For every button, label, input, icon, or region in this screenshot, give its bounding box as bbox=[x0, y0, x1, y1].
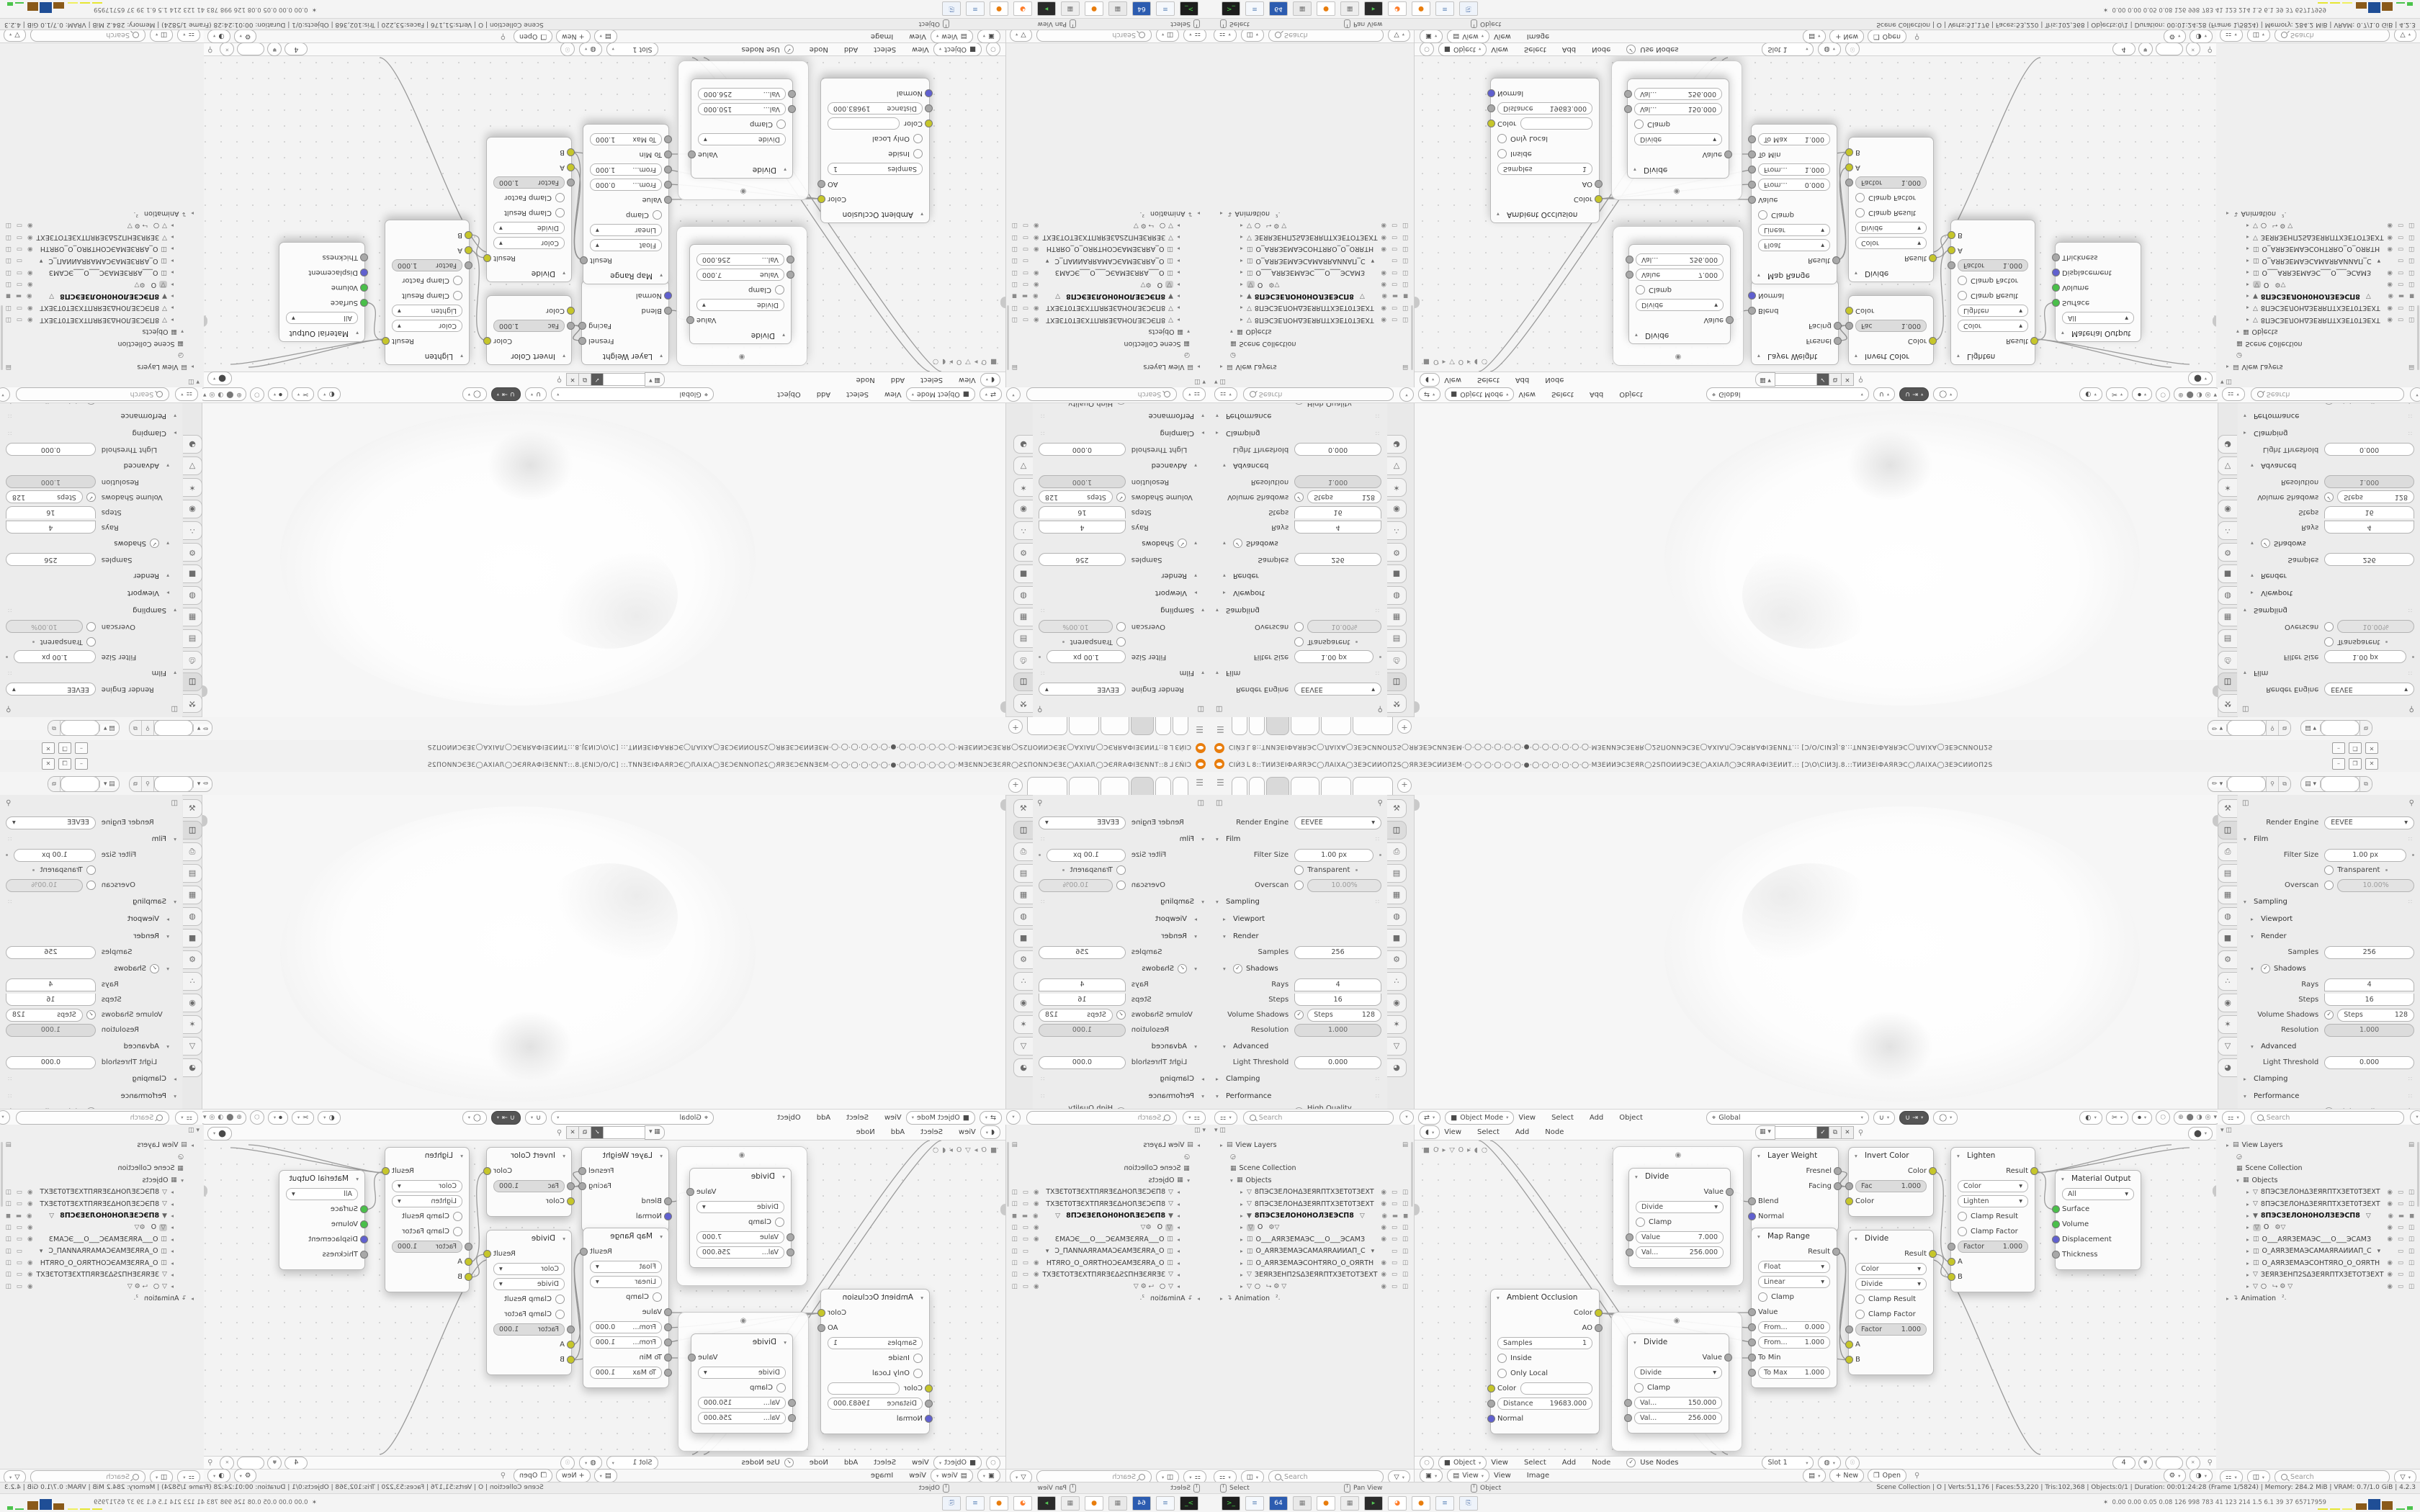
expand-arrow-icon[interactable]: ▸ bbox=[167, 305, 174, 311]
socket-purple[interactable] bbox=[1748, 1212, 1756, 1220]
workspace-tab[interactable] bbox=[1291, 777, 1319, 795]
notepad-taskbar-icon[interactable]: ≡ bbox=[1156, 1496, 1175, 1511]
outliner-item[interactable]: ▸▽ЗЕЯRЗЕНП2SΔЗЕЯRПТХЗЕТОТЗЕХТ◉▭◫ bbox=[1210, 231, 1411, 243]
properties-section-advanced[interactable]: ▾Advanced bbox=[6, 1038, 176, 1055]
editor-type-button[interactable]: ⚏ ▾ bbox=[2222, 388, 2245, 402]
editor-type-button[interactable]: ⚏ ▾ bbox=[1214, 1111, 1237, 1125]
value-from[interactable]: From...1.000 bbox=[590, 163, 662, 176]
terminal-taskbar-icon[interactable]: >_ bbox=[1222, 1, 1240, 16]
properties-search-input[interactable]: Search bbox=[1243, 388, 1394, 402]
expand-arrow-icon[interactable]: ▾ bbox=[1223, 966, 1229, 972]
outliner-item[interactable]: ▸▽○⮡ ⚙ ▽◉▭◫ bbox=[1009, 1281, 1210, 1292]
properties-section-viewport[interactable]: ▸Viewport bbox=[6, 910, 176, 927]
particles-properties-tab-icon[interactable]: ∴ bbox=[1387, 972, 1407, 991]
editor-type-button[interactable]: ⚏ ▾ bbox=[2222, 1111, 2245, 1125]
visibility-icon[interactable]: ◉ bbox=[27, 246, 32, 253]
value-light-threshold[interactable]: 0.000 bbox=[1039, 1056, 1126, 1069]
image-id-selector[interactable]: ▤ ▾ ⧉ bbox=[48, 776, 120, 792]
node-ambient-occlusion[interactable]: ▾Ambient OcclusionColorAOSamples1InsideO… bbox=[820, 78, 930, 223]
visibility-icon[interactable]: ◉ bbox=[2388, 222, 2393, 229]
blender-taskbar-icon[interactable]: ● bbox=[1317, 1, 1335, 16]
blender-2-taskbar-icon[interactable]: ● bbox=[990, 1496, 1008, 1511]
notepad-2-taskbar-icon[interactable]: ≡ bbox=[966, 1496, 985, 1511]
expand-arrow-icon[interactable]: ▸ bbox=[1240, 282, 1247, 288]
pin-icon[interactable]: ⚲ bbox=[207, 45, 212, 53]
visibility-icon[interactable]: ◉ bbox=[27, 1212, 32, 1220]
socket-purple[interactable] bbox=[360, 1236, 368, 1243]
expand-arrow-icon[interactable]: ▾ bbox=[1191, 463, 1197, 469]
socket-gray[interactable] bbox=[1845, 1326, 1853, 1333]
expand-arrow-icon[interactable]: ▸ bbox=[2244, 1076, 2250, 1082]
socket-gray[interactable] bbox=[1748, 166, 1756, 174]
toolbar-toggle-handle[interactable] bbox=[1415, 701, 1420, 713]
scene-properties-tab-icon[interactable]: ▦ bbox=[183, 608, 202, 626]
visibility-icon[interactable]: ◉ bbox=[1034, 1236, 1039, 1243]
image-id-selector[interactable]: ▤ ▾ ⧉ bbox=[2300, 720, 2372, 736]
node-header[interactable]: ▾Divide bbox=[691, 1334, 792, 1350]
properties-section-render[interactable]: ▾Render bbox=[1216, 927, 1381, 945]
menu-add[interactable]: Add bbox=[891, 1128, 905, 1136]
material-properties-tab-icon[interactable]: ◕ bbox=[2218, 435, 2237, 454]
menu-add[interactable]: Add bbox=[1562, 45, 1576, 53]
expand-arrow-icon[interactable]: ▸ bbox=[1173, 1212, 1180, 1219]
expand-arrow-icon[interactable]: ▾ bbox=[163, 966, 169, 972]
node-header[interactable]: ▾Invert Color bbox=[487, 348, 571, 364]
node-header[interactable]: ▾Ambient Occlusion bbox=[1491, 1290, 1599, 1305]
toggle-checkbox[interactable] bbox=[2324, 1010, 2334, 1020]
value-resolution[interactable]: 1.000 bbox=[1039, 476, 1126, 489]
outliner-visibility-icons[interactable]: ◉▭◫ bbox=[1009, 269, 1039, 276]
properties-section-clamping[interactable]: ▸Clamping∷ bbox=[1039, 1070, 1204, 1087]
socket-yellow[interactable] bbox=[1845, 1356, 1853, 1364]
fake-user-toggle[interactable]: ✓ bbox=[1817, 373, 1829, 386]
visibility-icon[interactable]: ▭ bbox=[1023, 316, 1028, 323]
close-button[interactable]: ✕ bbox=[42, 758, 55, 770]
outliner-scrollbar[interactable] bbox=[1007, 305, 1009, 370]
menu-object[interactable]: Object bbox=[1619, 1114, 1643, 1122]
socket-gray[interactable] bbox=[1624, 1399, 1632, 1407]
collapse-arrow-icon[interactable]: ▾ bbox=[1633, 167, 1640, 174]
pin-icon[interactable]: ⚲ bbox=[2208, 45, 2213, 53]
tool-properties-tab-icon[interactable]: ⚒ bbox=[1387, 799, 1407, 818]
outliner-item[interactable]: ◶ bbox=[1210, 349, 1411, 361]
outliner-item[interactable]: ▦Scene Collection bbox=[2216, 1163, 2417, 1174]
scene-properties-tab-icon[interactable]: ▦ bbox=[183, 886, 202, 904]
value-fac[interactable]: Fac1.000 bbox=[493, 320, 565, 332]
node-divide[interactable]: ▾DivideResultColor▾Divide▾Clamp ResultCl… bbox=[486, 137, 572, 282]
menu-select[interactable]: Select bbox=[1551, 1114, 1574, 1122]
expand-arrow-icon[interactable]: ▸ bbox=[1193, 1295, 1200, 1302]
scene-properties-tab-icon[interactable]: ▦ bbox=[1387, 608, 1407, 626]
shading-options-chevron[interactable]: ▾ bbox=[2213, 391, 2217, 398]
socket-gray[interactable] bbox=[1748, 1197, 1756, 1205]
socket-yellow[interactable] bbox=[1929, 254, 1937, 262]
visibility-icon[interactable]: ▭ bbox=[2398, 1189, 2403, 1196]
snap-dropdown[interactable]: ∪ ▾ bbox=[525, 1111, 547, 1125]
visibility-icon[interactable]: ▭ bbox=[1391, 316, 1397, 323]
transform-orientation-dropdown[interactable]: ⌖ Global▾ bbox=[1706, 388, 1869, 402]
visibility-icon[interactable]: ◫ bbox=[6, 222, 12, 229]
data-properties-tab-icon[interactable]: ▽ bbox=[2218, 1037, 2237, 1056]
outliner-item[interactable]: ▾▦Objects bbox=[1009, 1174, 1210, 1186]
material-name-field[interactable] bbox=[603, 1126, 645, 1139]
node-divide[interactable]: ▾DivideResultColor▾Divide▾Clamp ResultCl… bbox=[1848, 137, 1934, 282]
visibility-icon[interactable]: ◉ bbox=[1381, 246, 1386, 253]
socket-gray[interactable] bbox=[664, 1197, 672, 1205]
animate-dot-icon[interactable] bbox=[32, 641, 35, 643]
section-checkbox[interactable] bbox=[150, 964, 159, 973]
gizmo-dropdown[interactable]: ◐▾ bbox=[318, 1111, 341, 1125]
display-channels-dropdown[interactable]: ◑ ▾ bbox=[2190, 30, 2213, 43]
outliner-visibility-icons[interactable]: ◉▭◫ bbox=[1009, 1189, 1039, 1196]
node-divide[interactable]: ▾DivideValueDivide▾ClampValue7.000Val...… bbox=[1628, 244, 1731, 344]
viewport-3d[interactable] bbox=[202, 795, 1006, 1109]
outliner-visibility-icons[interactable]: ◉▭◫ bbox=[2388, 1271, 2417, 1278]
socket-gray[interactable] bbox=[567, 1326, 575, 1333]
data-properties-tab-icon[interactable]: ▽ bbox=[1387, 456, 1407, 475]
dropdown-all[interactable]: All▾ bbox=[286, 1188, 358, 1200]
physics-properties-tab-icon[interactable]: ◉ bbox=[183, 500, 202, 518]
value-from[interactable]: From...1.000 bbox=[590, 1336, 662, 1349]
visibility-icon[interactable]: ◫ bbox=[1402, 1248, 1408, 1255]
toggle-checkbox[interactable] bbox=[1116, 622, 1126, 631]
proportional-edit-dropdown[interactable]: ◯ ▾ bbox=[462, 1111, 487, 1125]
material-icon[interactable]: ▦ ▾ bbox=[1755, 372, 1775, 387]
socket-green[interactable] bbox=[2052, 299, 2060, 307]
value-rays[interactable]: 4 bbox=[2324, 521, 2414, 534]
visibility-icon[interactable]: ◉ bbox=[1381, 305, 1386, 312]
socket-yellow[interactable] bbox=[1487, 120, 1495, 127]
scene-properties-tab-icon[interactable]: ▦ bbox=[2218, 608, 2237, 626]
expand-arrow-icon[interactable]: ▸ bbox=[167, 282, 174, 288]
visibility-icon[interactable]: ◫ bbox=[6, 316, 12, 323]
value-val[interactable]: Val...256.000 bbox=[698, 1412, 786, 1424]
visibility-icon[interactable]: ▭ bbox=[17, 1200, 22, 1207]
value-val[interactable]: Val...256.000 bbox=[1634, 1412, 1722, 1424]
render-properties-tab-icon[interactable]: ◫ bbox=[1387, 672, 1407, 691]
viewport-3d[interactable] bbox=[1414, 795, 2218, 1109]
shader-type-icon[interactable]: ◯ bbox=[986, 42, 1000, 57]
outliner-visibility-icons[interactable]: ◉▭◫ bbox=[1009, 234, 1039, 241]
socket-yellow[interactable] bbox=[1845, 148, 1853, 156]
visibility-icon[interactable]: ◫ bbox=[1402, 257, 1408, 264]
properties-section-film[interactable]: ▾Film∷ bbox=[6, 830, 176, 847]
dropdown-color[interactable]: Color▾ bbox=[1958, 1180, 2028, 1192]
visibility-icon[interactable]: ◉ bbox=[2388, 246, 2393, 253]
visibility-icon[interactable]: ▤ bbox=[2408, 1141, 2414, 1148]
visibility-icon[interactable]: ◫ bbox=[1012, 1224, 1018, 1231]
node-header[interactable]: ▾Map Range bbox=[583, 1228, 668, 1244]
modifiers-properties-tab-icon[interactable]: ⚙ bbox=[1387, 543, 1407, 562]
outliner-item[interactable]: ▦Scene Collection bbox=[3, 338, 204, 349]
expand-arrow-icon[interactable]: ▾ bbox=[163, 463, 169, 469]
expand-arrow-icon[interactable]: ▸ bbox=[1220, 364, 1227, 370]
solid-shading-icon[interactable]: ⬤ bbox=[226, 1114, 233, 1121]
expand-arrow-icon[interactable]: ▾ bbox=[170, 413, 176, 420]
open-image-button[interactable]: ❒ Open bbox=[1868, 30, 1906, 43]
output-properties-tab-icon[interactable]: ⎙ bbox=[1387, 842, 1407, 861]
visibility-icon[interactable]: ◉ bbox=[27, 1271, 32, 1278]
expand-arrow-icon[interactable]: ▸ bbox=[1173, 1201, 1180, 1207]
visibility-icon[interactable]: ◉ bbox=[27, 316, 32, 323]
pin-icon[interactable]: ⚲ bbox=[142, 777, 154, 791]
use-nodes-checkbox[interactable] bbox=[784, 45, 794, 54]
visibility-icon[interactable]: ◉ bbox=[1034, 1189, 1039, 1196]
collapse-arrow-icon[interactable]: ▾ bbox=[559, 1153, 565, 1159]
expand-arrow-icon[interactable]: ▸ bbox=[1240, 1212, 1247, 1219]
outliner-visibility-icons[interactable]: ◉▭◫ bbox=[3, 269, 32, 276]
mode-dropdown[interactable]: ■ Object Mode ▾ bbox=[906, 1111, 975, 1125]
display-channels-dropdown[interactable]: ◑ ▾ bbox=[207, 1469, 230, 1482]
script-taskbar-icon[interactable]: ⎘ bbox=[942, 1496, 961, 1511]
editor-type-dropdown[interactable]: ▣ ▾ bbox=[977, 30, 1000, 43]
menu-object[interactable]: Object bbox=[777, 391, 801, 399]
expand-arrow-icon[interactable]: ▸ bbox=[1240, 1224, 1247, 1230]
visibility-icon[interactable]: ◉ bbox=[27, 1259, 32, 1266]
animate-dot-icon[interactable] bbox=[1355, 869, 1358, 871]
socket-gray[interactable] bbox=[1624, 1414, 1632, 1422]
outliner-visibility-icons[interactable]: ▭◫ bbox=[3, 257, 22, 264]
material-shading-icon[interactable]: ◑ bbox=[2197, 391, 2202, 398]
output-properties-tab-icon[interactable]: ⎙ bbox=[1013, 842, 1033, 861]
outliner-visibility-icons[interactable]: ◉▭◫ bbox=[1381, 222, 1411, 229]
node-layer-weight[interactable]: ▾Layer WeightFresnelFacingBlendNormal bbox=[581, 1147, 669, 1232]
material-properties-tab-icon[interactable]: ◕ bbox=[1387, 435, 1407, 454]
checkbox-clamp[interactable] bbox=[1758, 210, 1767, 220]
value-val[interactable]: Val...256.000 bbox=[696, 253, 784, 266]
physics-properties-tab-icon[interactable]: ◉ bbox=[1013, 500, 1033, 518]
pin-icon[interactable]: ⚲ bbox=[1037, 799, 1042, 807]
snapping-dropdown[interactable]: ⬤ ▾ bbox=[2188, 372, 2213, 386]
socket-yellow[interactable] bbox=[465, 231, 472, 239]
socket-gray[interactable] bbox=[1948, 1243, 1955, 1251]
visibility-icon[interactable]: ◫ bbox=[1402, 305, 1408, 312]
constraints-properties-tab-icon[interactable]: ✶ bbox=[183, 478, 202, 497]
node-divide[interactable]: ▾DivideValueDivide▾ClampVal...150.000Val… bbox=[1627, 78, 1729, 179]
script-taskbar-icon[interactable]: ⎘ bbox=[1459, 1496, 1478, 1511]
properties-section-sampling[interactable]: ▾Sampling∷ bbox=[6, 893, 176, 910]
socket-gray[interactable] bbox=[1948, 261, 1955, 269]
scene-properties-tab-icon[interactable]: ▦ bbox=[1013, 886, 1033, 904]
value-fac[interactable]: Fac1.000 bbox=[493, 1180, 565, 1192]
pin-icon[interactable]: ⚲ bbox=[1858, 376, 1863, 384]
checkbox-clamp[interactable] bbox=[653, 1292, 662, 1302]
visibility-icon[interactable]: ▭ bbox=[17, 1189, 22, 1196]
copy-material-button[interactable]: ⧉ bbox=[1829, 373, 1842, 386]
visibility-icon[interactable]: ▭ bbox=[1023, 1200, 1028, 1207]
expand-arrow-icon[interactable]: ▾ bbox=[2244, 670, 2250, 677]
value-to max[interactable]: To Max1.000 bbox=[590, 133, 662, 145]
value-factor[interactable]: Factor1.000 bbox=[392, 259, 462, 271]
pin-icon[interactable]: ⚲ bbox=[1378, 705, 1383, 713]
toggle-checkbox[interactable] bbox=[86, 881, 96, 890]
physics-properties-tab-icon[interactable]: ◉ bbox=[1387, 500, 1407, 518]
collapse-arrow-icon[interactable]: ▾ bbox=[457, 354, 463, 360]
expand-arrow-icon[interactable]: ▸ bbox=[1173, 246, 1180, 252]
new-tab-button[interactable]: + bbox=[1397, 719, 1412, 734]
blender-2-taskbar-icon[interactable]: ● bbox=[1412, 1496, 1430, 1511]
visibility-icon[interactable]: ◫ bbox=[2408, 1248, 2414, 1255]
visibility-icon[interactable]: ▬ bbox=[1022, 292, 1028, 300]
visibility-icon[interactable]: ◼ bbox=[1012, 292, 1017, 300]
node-preview-icon[interactable]: ◉ bbox=[1674, 1317, 1680, 1325]
visibility-icon[interactable]: ▭ bbox=[2398, 1200, 2403, 1207]
outliner-visibility-icons[interactable]: ◉▭◫ bbox=[1381, 1189, 1411, 1196]
socket-gray[interactable] bbox=[788, 1414, 796, 1422]
visibility-icon[interactable]: ◫ bbox=[2408, 281, 2414, 288]
value-steps[interactable]: 16 bbox=[2324, 506, 2414, 518]
expand-arrow-icon[interactable]: ▸ bbox=[167, 1283, 174, 1290]
outliner-item[interactable]: ▸▽ЗЕЯRЗЕНП2SΔЗЕЯRПТХЗЕТОТЗЕХТ◉▭◫ bbox=[3, 231, 204, 243]
properties-section-viewport[interactable]: ▸Viewport bbox=[1216, 910, 1381, 927]
physics-properties-tab-icon[interactable]: ◉ bbox=[2218, 994, 2237, 1012]
collapse-arrow-icon[interactable]: ▾ bbox=[1633, 1339, 1640, 1346]
outliner-visibility-icons[interactable]: ◉▭◫ bbox=[1009, 1271, 1039, 1278]
visibility-icon[interactable]: ▭ bbox=[1023, 305, 1028, 312]
properties-section-shadows[interactable]: ▾Shadows bbox=[1216, 960, 1381, 977]
outliner-item[interactable]: ▸▽ЗЕЯRЗЕНП2SΔЗЕЯRПТХЗЕТОТЗЕХТ◉▭◫ bbox=[2216, 1269, 2417, 1280]
render-properties-tab-icon[interactable]: ◫ bbox=[1013, 672, 1033, 691]
toolbar-toggle-handle[interactable] bbox=[1000, 1204, 1005, 1215]
socket-gray[interactable] bbox=[1487, 1400, 1495, 1408]
expand-arrow-icon[interactable]: ▾ bbox=[1230, 328, 1237, 335]
visibility-icon[interactable]: ▭ bbox=[2398, 1236, 2403, 1243]
image-id-field[interactable] bbox=[2321, 776, 2359, 792]
close-button[interactable]: ✕ bbox=[2365, 758, 2378, 770]
value-val[interactable]: Val...256.000 bbox=[696, 1246, 784, 1259]
section-checkbox[interactable] bbox=[150, 539, 159, 549]
solid-shading-icon[interactable]: ⬤ bbox=[226, 391, 233, 398]
socket-gray[interactable] bbox=[664, 150, 672, 158]
socket-purple[interactable] bbox=[925, 1415, 933, 1423]
checkbox-transparent[interactable] bbox=[86, 865, 96, 875]
outliner-display-mode[interactable]: ▾ ◫ bbox=[1194, 378, 1206, 385]
visibility-icon[interactable]: ◫ bbox=[1012, 1189, 1018, 1196]
expand-arrow-icon[interactable]: ▸ bbox=[2246, 293, 2253, 300]
node-ambient-occlusion[interactable]: ▾Ambient OcclusionColorAOSamples1InsideO… bbox=[820, 1289, 930, 1434]
value-steps[interactable]: 16 bbox=[1294, 994, 1381, 1006]
properties-section-viewport[interactable]: ▸Viewport bbox=[6, 585, 176, 602]
outliner-item[interactable]: ▸▤View Layers▤ bbox=[1210, 361, 1411, 373]
expand-arrow-icon[interactable]: ▸ bbox=[1240, 246, 1247, 252]
section-checkbox[interactable] bbox=[1178, 964, 1187, 973]
new-image-button[interactable]: + New bbox=[1829, 1469, 1864, 1482]
expand-arrow-icon[interactable]: ▸ bbox=[170, 431, 176, 437]
visibility-icon[interactable]: ◉ bbox=[2388, 305, 2393, 312]
options-dropdown[interactable]: ▾ bbox=[0, 387, 10, 402]
value-distance[interactable]: Distance19683.000 bbox=[1497, 102, 1592, 114]
data-properties-tab-icon[interactable]: ▽ bbox=[1013, 456, 1033, 475]
outliner-item[interactable]: ▾▦Objects bbox=[1009, 325, 1210, 337]
outliner-visibility-icons[interactable]: ▭◫ bbox=[1009, 1248, 1028, 1255]
properties-section-performance[interactable]: ▾Performance∷ bbox=[1039, 408, 1204, 425]
value-resolution[interactable]: 1.000 bbox=[2324, 476, 2414, 489]
node-header[interactable]: ▾Layer Weight bbox=[1752, 348, 1838, 364]
checkbox-clamp[interactable] bbox=[1634, 120, 1644, 129]
properties-section-render[interactable]: ▾Render bbox=[2244, 927, 2414, 945]
outliner-item[interactable]: ▸◫O_АЯRЗЕМАЭСОНТЯRО_О_ОЯRТН◉▭◫ bbox=[2216, 1257, 2417, 1269]
outliner-visibility-icons[interactable]: ▤ bbox=[1402, 1141, 1411, 1148]
properties-section-performance[interactable]: ▾Performance∷ bbox=[1039, 1087, 1204, 1104]
expand-arrow-icon[interactable]: ▾ bbox=[177, 328, 184, 335]
outliner-scrollbar[interactable] bbox=[1411, 1142, 1413, 1207]
info-icon[interactable]: ⓘ bbox=[560, 1456, 575, 1470]
socket-yellow[interactable] bbox=[817, 1309, 825, 1317]
close-icon[interactable]: ✕ bbox=[220, 42, 234, 57]
editor-type-dropdown[interactable]: ◖ ▾ bbox=[980, 373, 1000, 387]
animate-dot-icon[interactable] bbox=[6, 854, 8, 856]
checkbox-transparent[interactable] bbox=[1116, 865, 1126, 875]
outliner-item[interactable]: ▸◫O___АЯRЗЕМАЭС___O___ЭСАМЗ◉▭◫ bbox=[1009, 266, 1210, 278]
expand-arrow-icon[interactable]: ▸ bbox=[167, 269, 174, 276]
visibility-icon[interactable]: ▭ bbox=[1391, 1248, 1397, 1255]
expand-arrow-icon[interactable]: ▸ bbox=[1240, 1201, 1247, 1207]
value-overscan[interactable]: 10.00% bbox=[2337, 879, 2414, 892]
outliner-item[interactable]: ▸↴Animation². bbox=[1210, 208, 1411, 220]
checkbox-transparent[interactable] bbox=[86, 637, 96, 647]
collapse-arrow-icon[interactable]: ▾ bbox=[780, 167, 786, 174]
pin-icon[interactable]: ⚲ bbox=[1914, 1472, 1919, 1480]
expand-arrow-icon[interactable]: ▸ bbox=[1240, 1272, 1247, 1278]
node-material-output[interactable]: ▾Material OutputAll▾SurfaceVolumeDisplac… bbox=[279, 1170, 365, 1270]
value-fac[interactable]: Fac1.000 bbox=[1855, 320, 1927, 332]
workspace-tab[interactable] bbox=[1249, 777, 1265, 795]
expand-arrow-icon[interactable]: ▸ bbox=[1173, 269, 1180, 276]
rendered-shading-icon[interactable]: ◎ bbox=[2205, 1114, 2211, 1121]
outliner-item[interactable]: ▸▽8ПЭСЗЕЛОНΔЗЕЯRПТХЗЕТ0ТЗЕХТ◉▭◫ bbox=[1009, 1187, 1210, 1198]
object-properties-tab-icon[interactable]: ■ bbox=[183, 564, 202, 583]
value-samples[interactable]: 256 bbox=[1039, 554, 1126, 567]
socket-gray[interactable] bbox=[1726, 316, 1734, 324]
value-steps[interactable]: 16 bbox=[1039, 994, 1126, 1006]
tool-properties-tab-icon[interactable]: ⚒ bbox=[2218, 799, 2237, 818]
visibility-icon[interactable]: ▭ bbox=[1023, 1259, 1028, 1266]
outliner-item[interactable]: ▸▽8ПЭСЗЕЛОНΔЗЕЯRПТХЗЕТ0ТЗЕХТ◉▭◫ bbox=[1210, 302, 1411, 314]
collapse-arrow-icon[interactable]: ▾ bbox=[457, 1153, 463, 1159]
socket-gray[interactable] bbox=[664, 1338, 672, 1346]
workspace-tab[interactable] bbox=[1155, 717, 1171, 735]
dropdown-linear[interactable]: Linear▾ bbox=[1758, 224, 1830, 236]
value-render-engine[interactable]: EEVEE▾ bbox=[2324, 683, 2414, 696]
workspace-tab[interactable] bbox=[1027, 777, 1067, 795]
value-val[interactable]: Val...150.000 bbox=[698, 1397, 786, 1409]
socket-green[interactable] bbox=[360, 1220, 368, 1228]
workspace-tab[interactable] bbox=[1353, 777, 1393, 795]
gizmo-dropdown[interactable]: ◐▾ bbox=[318, 388, 341, 402]
socket-yellow[interactable] bbox=[1929, 1250, 1937, 1258]
expand-arrow-icon[interactable]: ▸ bbox=[2246, 1189, 2253, 1195]
outliner-visibility-icons[interactable]: ◉▭◫ bbox=[3, 1271, 32, 1278]
socket-gray[interactable] bbox=[1748, 1338, 1756, 1346]
expand-arrow-icon[interactable]: ▸ bbox=[2246, 1248, 2253, 1254]
socket-gray[interactable] bbox=[2052, 1251, 2060, 1259]
expand-arrow-icon[interactable]: ▸ bbox=[1223, 590, 1229, 597]
dropdown-divide[interactable]: Divide▾ bbox=[698, 1367, 786, 1379]
properties-section-render[interactable]: ▾Render bbox=[1216, 567, 1381, 585]
visibility-icon[interactable]: ◫ bbox=[1402, 1236, 1408, 1243]
visibility-icon[interactable]: ◫ bbox=[1402, 281, 1408, 288]
pin-icon[interactable]: ⚲ bbox=[2266, 777, 2278, 791]
world-properties-tab-icon[interactable]: ◍ bbox=[2218, 907, 2237, 926]
value-fac[interactable]: Fac1.000 bbox=[1855, 1180, 1927, 1192]
node-canvas[interactable]: ■ O ▸ ▽ O ▸ ◖ ○ ▾Ambient OcclusionColorA… bbox=[202, 1140, 1005, 1456]
menu-object[interactable]: Object bbox=[1619, 391, 1643, 399]
visibility-icon[interactable]: ◫ bbox=[6, 1271, 12, 1278]
use-nodes-checkbox[interactable] bbox=[1626, 1458, 1636, 1467]
socket-yellow[interactable] bbox=[465, 1273, 472, 1281]
expand-arrow-icon[interactable]: ▾ bbox=[163, 541, 169, 547]
restore-button[interactable]: ❐ bbox=[2349, 758, 2362, 770]
